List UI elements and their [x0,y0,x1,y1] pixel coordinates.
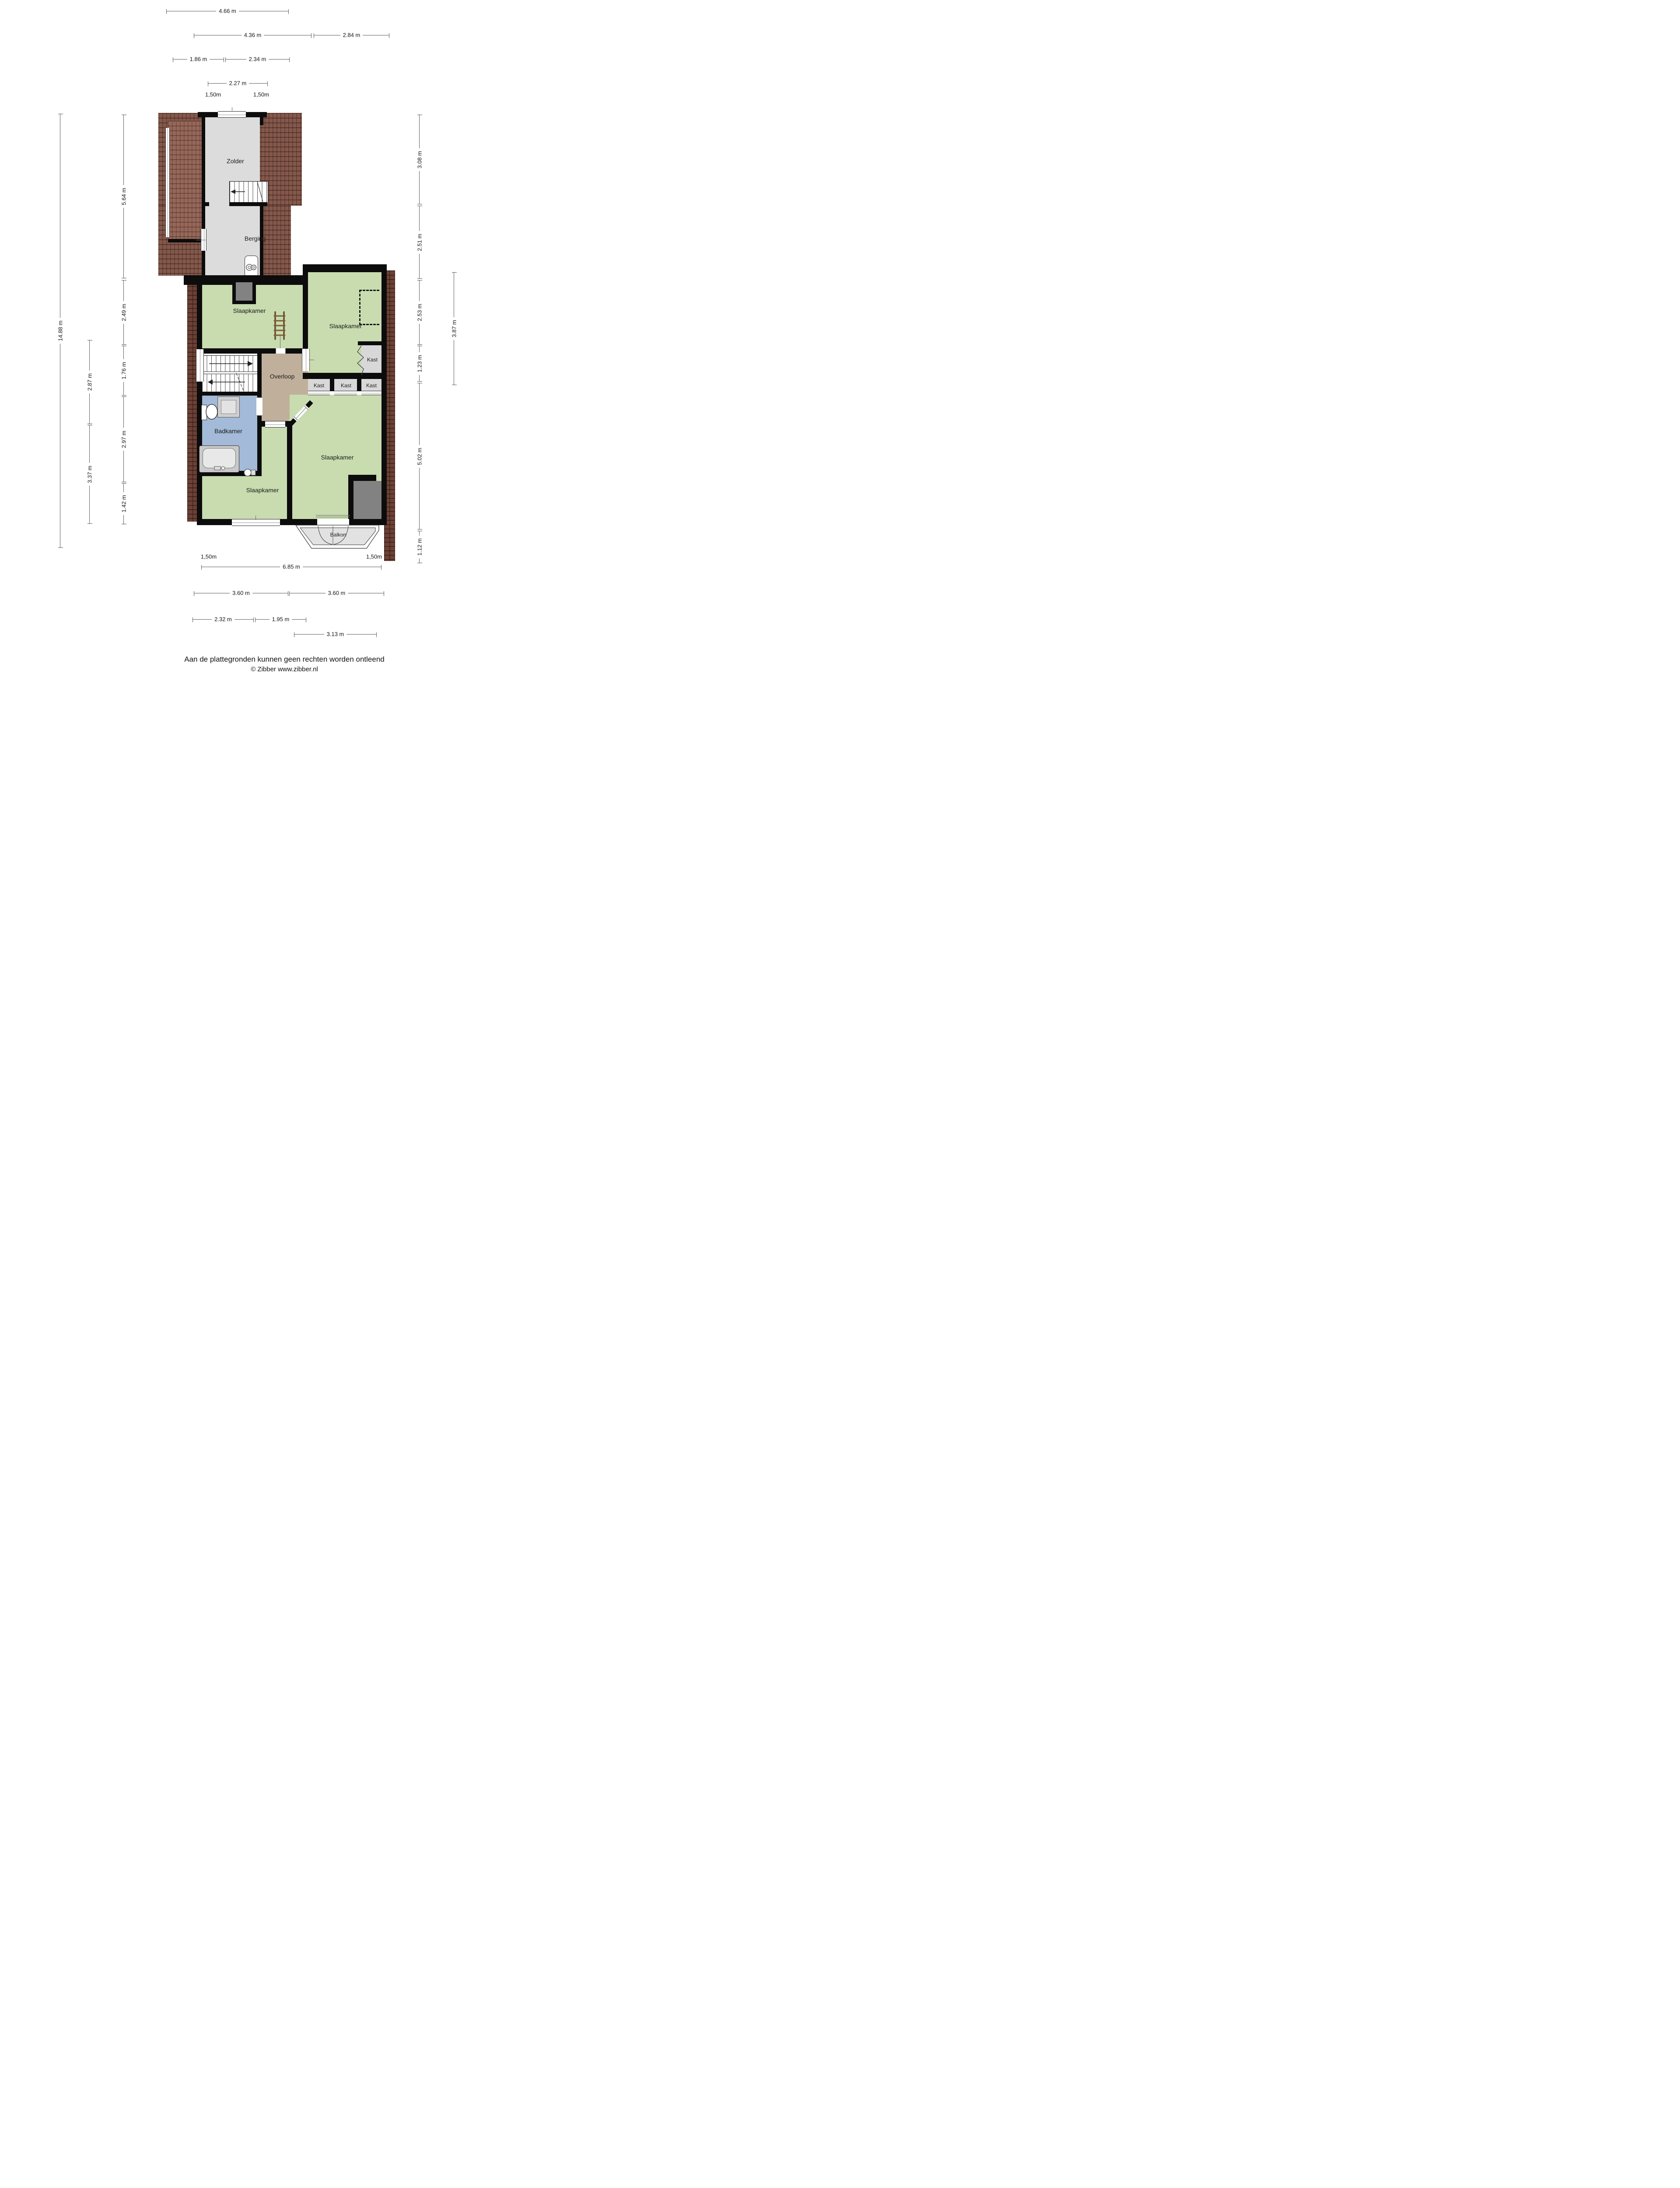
dim-left-337: 3.37 m [89,425,90,524]
dormer-side-window [165,128,170,237]
dim-left-287: 2.87 m [89,340,90,424]
dim-left-142: 1.42 m [123,483,124,524]
dim-top-466: 4.66 m [166,11,289,11]
dim-bottom-150-right: 1,50m [366,554,382,560]
room-label-kast1: Kast [314,382,324,389]
bedroom1-door-leaf [280,336,280,348]
dim-top-150-right: 1,50m [253,91,269,98]
attic-dormer-roof [168,121,205,242]
dim-top-234: 2.34 m [225,59,290,60]
bedroom3-floor-left [202,476,262,519]
room-label-kast3: Kast [366,382,377,389]
room-label-berging: Berging [245,235,266,242]
bedroom3-bedroom4-wall [287,421,292,525]
dim-bottom-685: 6.85 m [201,567,381,567]
footer-disclaimer: Aan de plattegronden kunnen geen rechten… [66,655,503,664]
boiler-icon [245,256,258,277]
dim-top-186: 1.86 m [173,59,224,60]
room-label-slaapkamer1: Slaapkamer [233,307,266,314]
left-outer-wall [197,277,202,525]
dim-left-297: 2.97 m [123,396,124,482]
dim-bottom-360-right: 3.60 m [289,593,384,593]
bathtub-inner [203,448,236,468]
dim-left-176: 1.76 m [123,346,124,396]
zolder-top-window [218,111,246,118]
dim-top-227: 2.27 m [208,83,268,84]
dim-top-284: 2.84 m [314,35,389,35]
balcony-door-opening [317,519,349,525]
stairwell-window [196,349,204,382]
bedroom3-door-opening [265,421,285,428]
bedroom3-window [232,519,280,526]
kast-row-top-wall [303,373,387,379]
attic-left-wall [202,116,205,276]
attic-stairs [229,181,268,203]
room-label-badkamer: Badkamer [214,428,242,435]
room-label-slaapkamer3: Slaapkamer [246,487,279,494]
dim-right-251: 2.51 m [419,206,420,279]
bathroom-east-wall [257,427,262,471]
dim-bottom-313: 3.13 m [294,634,377,635]
dim-right-123: 1.23 m [419,346,420,382]
chimney1-icon [236,282,252,301]
dim-bottom-195: 1.95 m [255,619,306,620]
bedroom-divider-wall [303,272,308,349]
dim-bottom-360-left: 3.60 m [194,593,288,593]
attic-top-wall-left [198,112,219,117]
kast3-sliding-door [361,391,381,395]
kast2-sliding-door [334,391,357,395]
attic-top-wall-right [246,112,267,117]
dim-right-112: 1.12 m [419,531,420,563]
dim-top-436: 4.36 m [194,35,311,35]
dim-left-249: 2.49 m [123,280,124,345]
bedroom3-floor-right [262,427,287,519]
room-label-balkon: Balkon [330,532,346,538]
kast1-sliding-door [308,391,330,395]
footer-copyright: © Zibber www.zibber.nl [66,666,503,672]
zolder-window-tick [232,107,232,112]
room-label-slaapkamer4: Slaapkamer [321,454,354,461]
toilet-tank [201,405,207,420]
kast-partition2 [357,379,361,391]
room-label-kast4: Kast [367,357,378,363]
bedroom1-overloop-wall [197,348,308,354]
dim-top-150-left: 1,50m [205,91,221,98]
zolder-berging-wall-left [205,202,209,206]
room-label-overloop: Overloop [270,373,295,380]
dim-bottom-150-left: 1,50m [201,554,217,560]
dim-right-253: 2.53 m [419,280,420,345]
room-label-slaapkamer2: Slaapkamer [329,323,362,330]
zolder-berging-wall-right [229,202,267,206]
right-outer-wall [381,272,387,525]
bedroom1-door-opening [276,348,286,354]
room-label-zolder: Zolder [227,158,244,165]
dim-left-1488: 14.88 m [60,114,60,548]
dim-right-308: 3.08 m [419,115,420,204]
balcony-door-frame-line2 [316,517,350,517]
kast-partition1 [330,379,334,391]
berging-window-tick [196,240,206,240]
balcony-door-frame-line1 [316,515,350,515]
bedroom3-window-tick [255,515,256,520]
floor-top-wall-right [303,264,387,272]
chimney2-icon [353,481,381,519]
bathroom-door-opening [256,397,262,416]
bedroom2-dormer-dashed-outline [359,290,379,325]
dim-left-564: 5.64 m [123,115,124,278]
shower-tray [221,400,236,414]
chimney2-top-wall [348,475,376,481]
dim-right-502: 5.02 m [419,383,420,529]
room-label-kast2: Kast [341,382,351,389]
dim-bottom-232: 2.32 m [192,619,254,620]
floorplan-canvas: Zolder Berging Slaapkamer Slaapkamer Ove… [0,0,504,672]
dim-right-387: 3.87 m [454,272,454,385]
chimney2-left-wall [348,481,353,519]
stairs-landing-line [202,372,257,374]
kast4-top-wall [358,341,387,345]
bedroom2-door-tick [309,360,314,360]
